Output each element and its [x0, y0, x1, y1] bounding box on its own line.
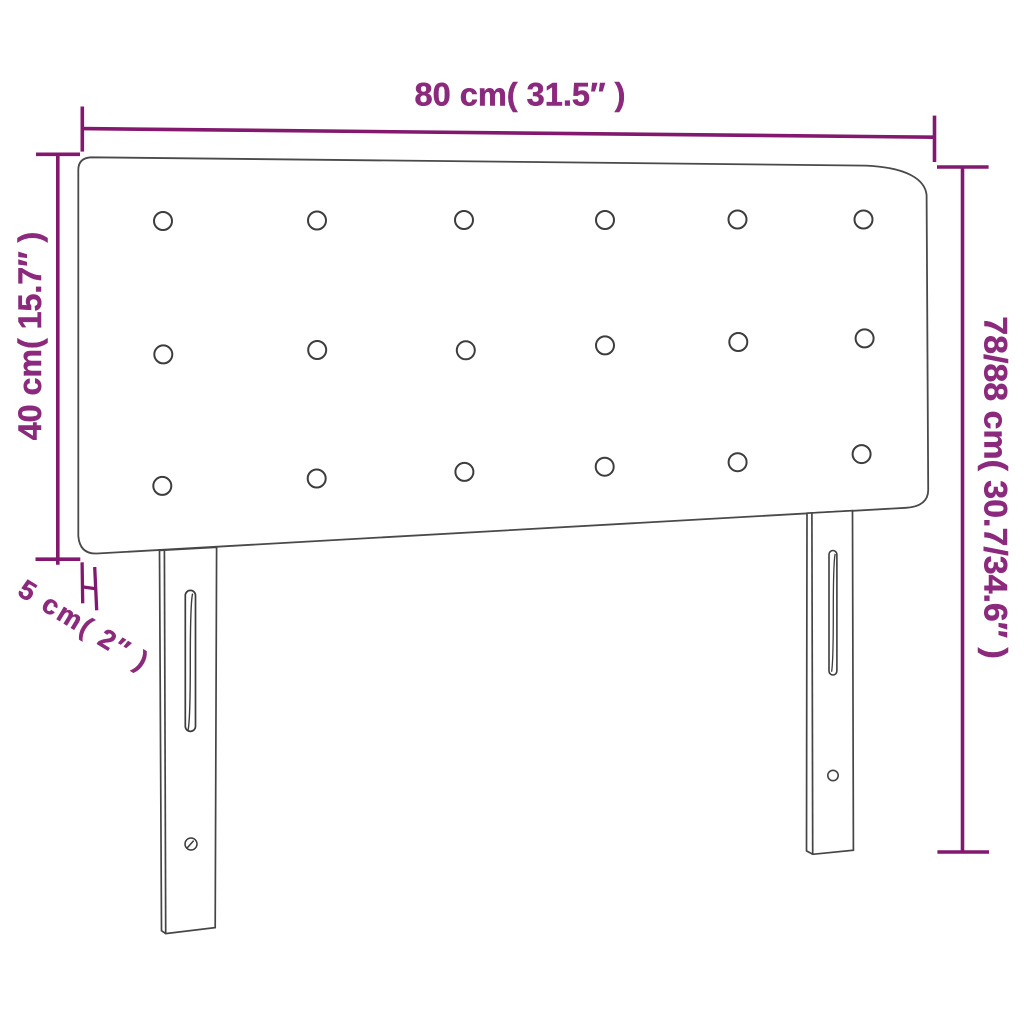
svg-text:40 cm( 15.7″ ): 40 cm( 15.7″ ) [12, 232, 48, 441]
svg-text:80 cm( 31.5″ ): 80 cm( 31.5″ ) [415, 77, 626, 113]
svg-text:78/88 cm( 30.7/34.6″ ): 78/88 cm( 30.7/34.6″ ) [978, 316, 1014, 659]
